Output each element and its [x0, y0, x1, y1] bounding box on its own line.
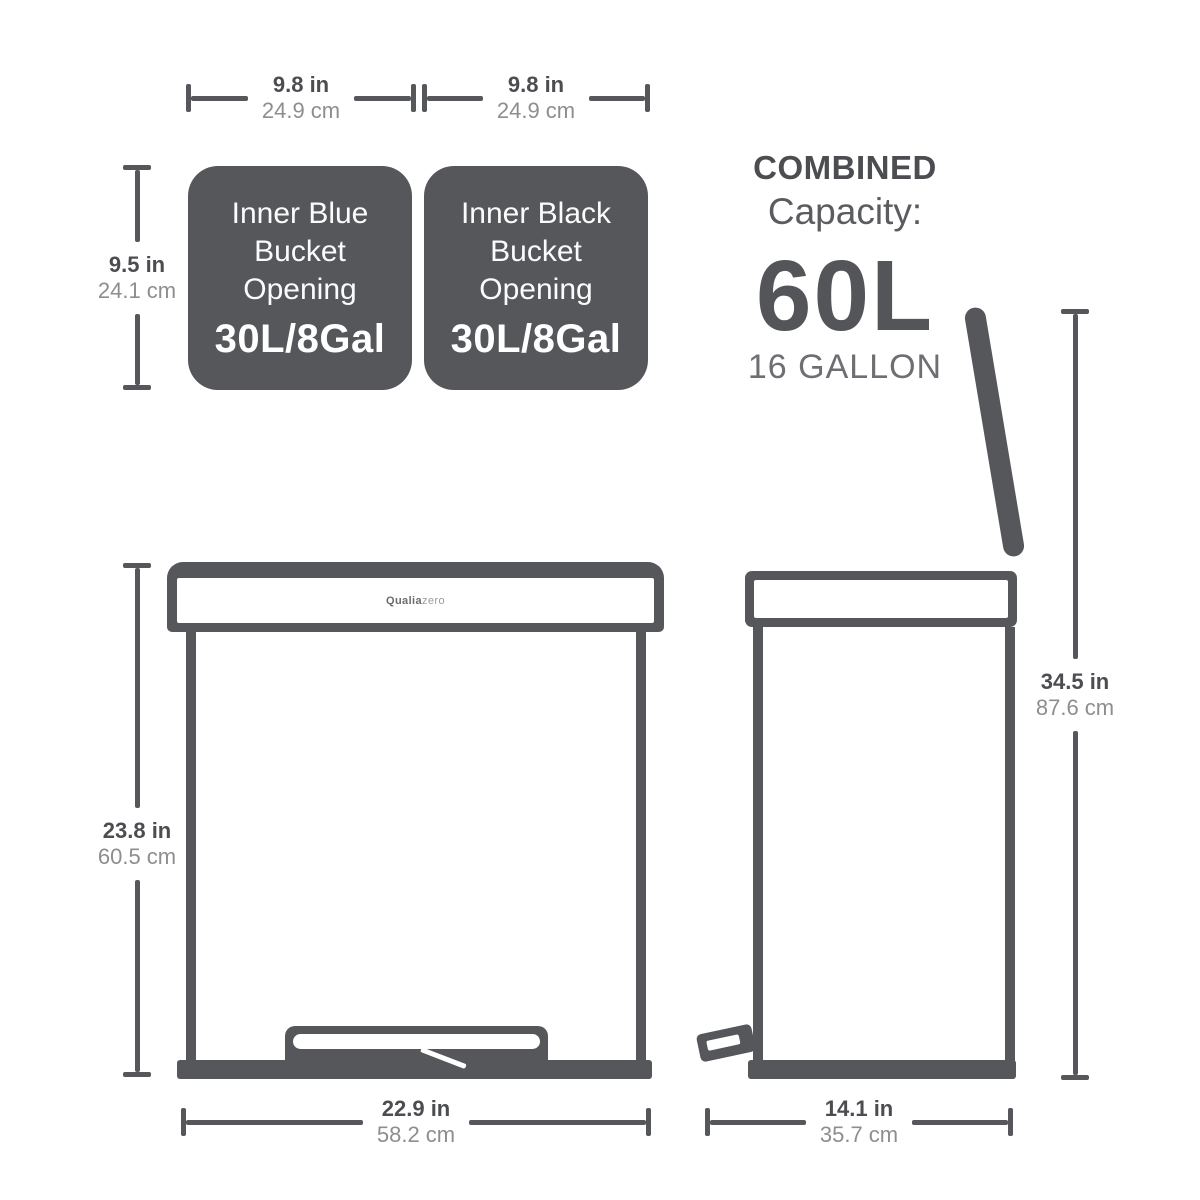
side-can-lid-panel — [754, 580, 1008, 618]
side-pedal-hole — [706, 1034, 740, 1051]
dimension-line — [589, 96, 645, 101]
dimension-line — [710, 1120, 806, 1125]
side-can-pedal — [696, 1023, 757, 1062]
bucket-label-line: Inner Blue — [188, 195, 412, 233]
bucket-card-blue: Inner Blue Bucket Opening 30L/8Gal — [188, 166, 412, 390]
dimension-line — [354, 96, 411, 101]
bucket-label-line: Opening — [188, 271, 412, 309]
bucket-card-black: Inner Black Bucket Opening 30L/8Gal — [424, 166, 648, 390]
spec-diagram: 9.8 in 24.9 cm 9.8 in 24.9 cm 9.5 in 24.… — [0, 0, 1200, 1200]
dimension-label: 23.8 in 60.5 cm — [98, 818, 176, 870]
dimension-line — [191, 96, 248, 101]
dimension-cm: 35.7 cm — [820, 1122, 898, 1148]
bucket-label-line: Bucket — [188, 233, 412, 271]
dimension-inches: 14.1 in — [820, 1096, 898, 1122]
dimension-bucket2-width: 9.8 in 24.9 cm — [422, 71, 650, 125]
dimension-line — [135, 568, 140, 808]
dimension-cm: 60.5 cm — [98, 844, 176, 870]
dimension-end-cap — [1061, 1075, 1089, 1080]
dimension-label: 34.5 in 87.6 cm — [1036, 669, 1114, 721]
dimension-label: 9.8 in 24.9 cm — [497, 72, 575, 124]
bucket-label-line: Bucket — [424, 233, 648, 271]
combined-subtitle: Capacity: — [695, 190, 995, 234]
side-can-base — [748, 1060, 1016, 1079]
front-can-body — [186, 630, 646, 1062]
dimension-line — [135, 314, 140, 386]
dimension-label: 9.8 in 24.9 cm — [262, 72, 340, 124]
dimension-inches: 23.8 in — [98, 818, 176, 844]
dimension-cm: 24.9 cm — [262, 98, 340, 124]
brand-bold: Qualia — [386, 595, 422, 607]
brand-light: zero — [422, 595, 445, 607]
front-can-lid-panel: Qualiazero — [177, 578, 654, 623]
front-pedal-stripe — [293, 1034, 540, 1049]
front-can-pedal — [285, 1026, 548, 1062]
bucket-label-line: Inner Black — [424, 195, 648, 233]
dimension-line — [912, 1120, 1008, 1125]
dimension-line — [1073, 731, 1078, 1076]
dimension-front-height: 23.8 in 60.5 cm — [121, 563, 153, 1077]
dimension-inches: 9.8 in — [497, 72, 575, 98]
bucket-capacity: 30L/8Gal — [424, 316, 648, 362]
dimension-end-cap — [646, 1108, 651, 1136]
dimension-label: 14.1 in 35.7 cm — [820, 1096, 898, 1148]
dimension-label: 9.5 in 24.1 cm — [98, 252, 176, 304]
side-can-body — [753, 627, 1015, 1062]
combined-capacity-block: COMBINED Capacity: 60L 16 GALLON — [695, 150, 995, 386]
dimension-end-cap — [123, 385, 151, 390]
dimension-line — [186, 1120, 363, 1125]
dimension-inches: 22.9 in — [377, 1096, 455, 1122]
dimension-side-height: 34.5 in 87.6 cm — [1059, 309, 1091, 1080]
combined-gallons: 16 GALLON — [695, 348, 995, 386]
dimension-line — [135, 880, 140, 1072]
dimension-cm: 24.9 cm — [497, 98, 575, 124]
side-can-lid-band — [745, 571, 1017, 627]
dimension-side-depth: 14.1 in 35.7 cm — [705, 1095, 1013, 1149]
dimension-cm: 24.1 cm — [98, 278, 176, 304]
dimension-inches: 9.8 in — [262, 72, 340, 98]
dimension-end-cap — [411, 84, 416, 112]
bucket-label-line: Opening — [424, 271, 648, 309]
front-can-lid: Qualiazero — [167, 562, 664, 632]
combined-title: COMBINED — [695, 150, 995, 186]
brand-logo: Qualiazero — [386, 595, 445, 607]
dimension-inches: 9.5 in — [98, 252, 176, 278]
dimension-bucket1-width: 9.8 in 24.9 cm — [186, 71, 416, 125]
dimension-line — [1073, 314, 1078, 659]
dimension-end-cap — [1008, 1108, 1013, 1136]
dimension-line — [135, 170, 140, 242]
front-can-base — [177, 1060, 652, 1079]
dimension-front-width: 22.9 in 58.2 cm — [181, 1095, 651, 1149]
dimension-inches: 34.5 in — [1036, 669, 1114, 695]
dimension-line — [427, 96, 483, 101]
dimension-cm: 58.2 cm — [377, 1122, 455, 1148]
combined-liters: 60L — [695, 248, 995, 344]
dimension-label: 22.9 in 58.2 cm — [377, 1096, 455, 1148]
dimension-end-cap — [123, 1072, 151, 1077]
dimension-bucket-height: 9.5 in 24.1 cm — [121, 165, 153, 390]
dimension-line — [469, 1120, 646, 1125]
dimension-end-cap — [645, 84, 650, 112]
bucket-capacity: 30L/8Gal — [188, 316, 412, 362]
dimension-cm: 87.6 cm — [1036, 695, 1114, 721]
